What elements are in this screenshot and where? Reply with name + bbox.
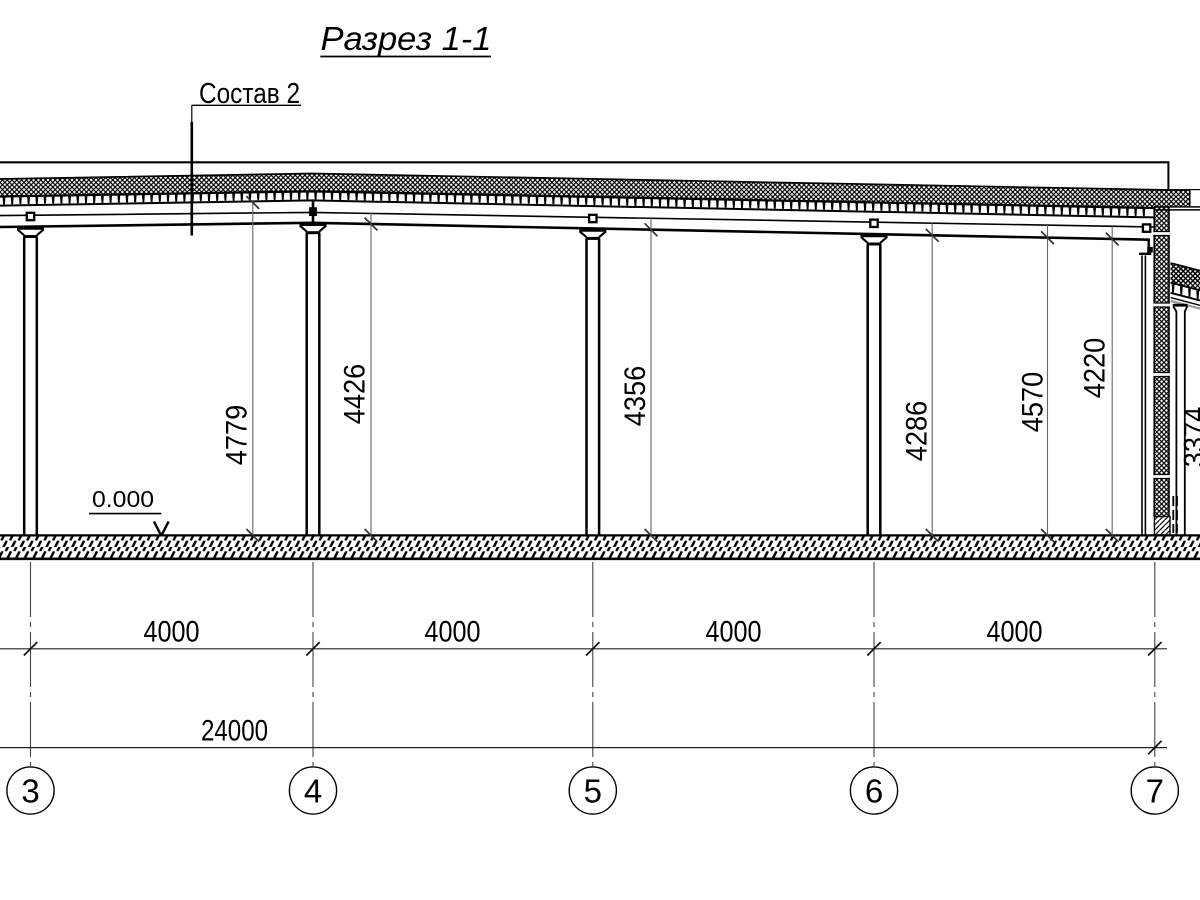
svg-text:4286: 4286 — [901, 401, 934, 462]
svg-text:5: 5 — [584, 772, 602, 809]
svg-text:4000: 4000 — [144, 616, 200, 649]
svg-text:4779: 4779 — [221, 405, 254, 466]
svg-text:4220: 4220 — [1079, 338, 1112, 399]
svg-text:0.000: 0.000 — [92, 486, 154, 512]
svg-text:6: 6 — [865, 772, 883, 809]
svg-text:4426: 4426 — [339, 364, 372, 425]
svg-text:4000: 4000 — [706, 616, 762, 649]
svg-text:4356: 4356 — [619, 366, 652, 427]
svg-text:7: 7 — [1146, 772, 1164, 809]
svg-text:4000: 4000 — [425, 616, 481, 649]
svg-text:3: 3 — [21, 772, 39, 809]
svg-text:Разрез 1-1: Разрез 1-1 — [321, 20, 492, 57]
svg-text:24000: 24000 — [201, 714, 268, 747]
svg-text:4: 4 — [304, 772, 322, 809]
svg-text:4000: 4000 — [987, 616, 1043, 649]
svg-text:4570: 4570 — [1017, 372, 1050, 433]
svg-text:3374: 3374 — [1179, 407, 1200, 468]
